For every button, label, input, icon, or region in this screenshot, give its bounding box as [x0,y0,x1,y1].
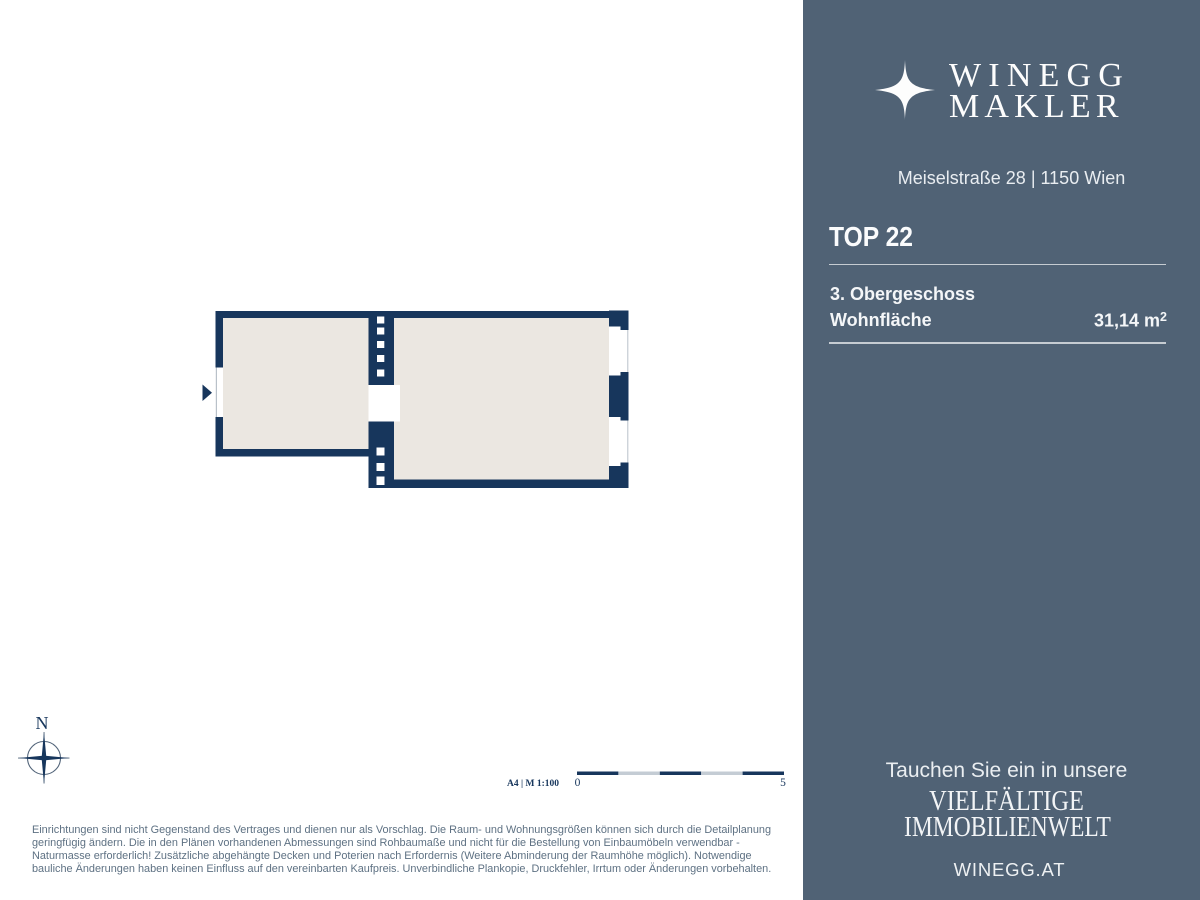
svg-text:5: 5 [780,777,786,789]
svg-text:A4 | M 1:100: A4 | M 1:100 [507,779,559,789]
svg-text:0: 0 [575,777,581,789]
svg-text:N: N [36,713,49,733]
